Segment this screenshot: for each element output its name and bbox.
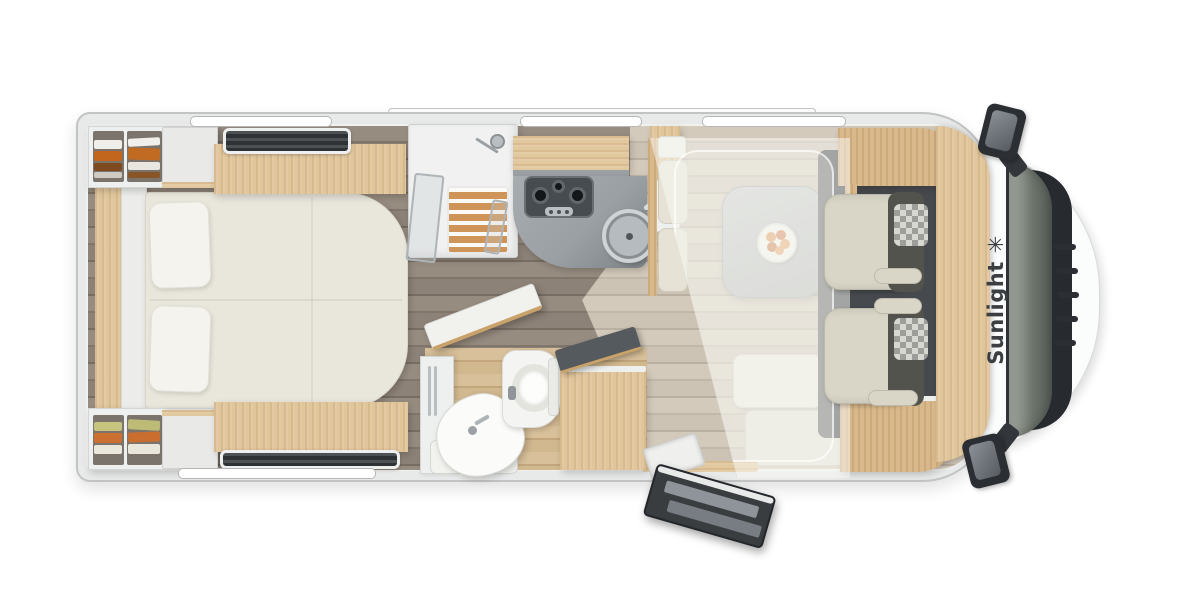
bed-pillow-bottom (149, 305, 212, 393)
window-top-1 (190, 116, 332, 127)
hob-controls (545, 207, 573, 216)
folded-clothes-orange (128, 147, 160, 160)
windshield-glass (1006, 162, 1052, 438)
brand-label: Sunlight ✳ (984, 180, 1010, 420)
toilet-lid-open (548, 358, 559, 416)
folded-clothes-orange (94, 151, 122, 161)
folded-clothes-white (128, 444, 160, 454)
seat-armrest-2 (868, 390, 918, 406)
wardrobe-bottom-compartment-1 (93, 415, 124, 465)
kitchen-hob (524, 176, 594, 218)
hood-grille-slat (1056, 268, 1078, 274)
sink-drain (626, 233, 633, 240)
toilet-flush-button (508, 386, 516, 400)
hob-knob (565, 210, 569, 214)
hood-grille-slat (1056, 316, 1078, 322)
folded-clothes-orange (128, 431, 160, 442)
bedside-floor-strip (95, 182, 123, 418)
seat-armrest (874, 268, 922, 284)
bed-headboard (121, 182, 147, 415)
wardrobe-bottom-door (162, 412, 218, 469)
roof-vent-bottom (220, 450, 400, 469)
hood-grille-slat (1057, 292, 1079, 298)
wardrobe-top-door (162, 127, 218, 184)
brand-name: Sunlight (984, 261, 1008, 364)
dashboard-wood-arch (936, 126, 990, 462)
sunlight-logo-icon: ✳ (984, 235, 1008, 253)
folded-clothes-white-2 (128, 162, 160, 170)
wardrobe-top-edge (162, 182, 218, 188)
entry-wood-bench (560, 370, 646, 470)
basin-faucet (468, 426, 477, 435)
mirror-glass (968, 440, 1002, 481)
seat-headrest-checker (894, 318, 928, 360)
passenger-seat (824, 192, 924, 292)
burner-right (569, 187, 586, 204)
window-top-2 (520, 116, 642, 127)
folded-clothes-white (128, 137, 160, 147)
wardrobe-top-compartment-2 (127, 131, 162, 182)
hood-grille-slat (1054, 340, 1076, 346)
burner-left (532, 187, 549, 204)
window-bottom-1 (178, 468, 376, 479)
wardrobe-bottom-compartment-2 (127, 415, 162, 465)
folded-clothes-olive (94, 422, 122, 431)
overhead-counter-bottom (214, 402, 408, 452)
folded-clothes-white (94, 445, 122, 454)
folded-clothes-brown (94, 163, 122, 171)
dinette-bench-back (648, 138, 657, 296)
burner-center (552, 180, 565, 193)
hob-knob (557, 210, 561, 214)
folded-clothes-brown (128, 172, 160, 178)
roof-vent-top (223, 128, 351, 154)
bed-seam-vertical (311, 197, 313, 404)
seat-headrest-checker (894, 204, 928, 246)
wardrobe-top-compartment-1 (93, 131, 124, 182)
towel-rail (428, 366, 431, 416)
wardrobe-bottom-edge (162, 410, 218, 416)
seat-armrest (874, 298, 922, 314)
hob-knob (549, 210, 553, 214)
folded-clothes-grey (94, 172, 122, 178)
folded-clothes-white (94, 140, 122, 149)
mirror-glass (984, 109, 1018, 152)
floor-plan-stage: Sunlight ✳ (0, 0, 1200, 600)
bed-pillow-top (149, 201, 212, 289)
bed-seam-horizontal (150, 299, 402, 301)
driver-seat (824, 306, 924, 406)
towel-rail-2 (434, 366, 437, 416)
kitchen-overhead-shelf (513, 136, 629, 172)
window-top-3 (702, 116, 846, 127)
folded-clothes-olive (128, 419, 160, 431)
hood-grille-slat (1054, 244, 1076, 250)
side-mirror-top (976, 102, 1027, 162)
folded-clothes-orange (94, 433, 122, 443)
